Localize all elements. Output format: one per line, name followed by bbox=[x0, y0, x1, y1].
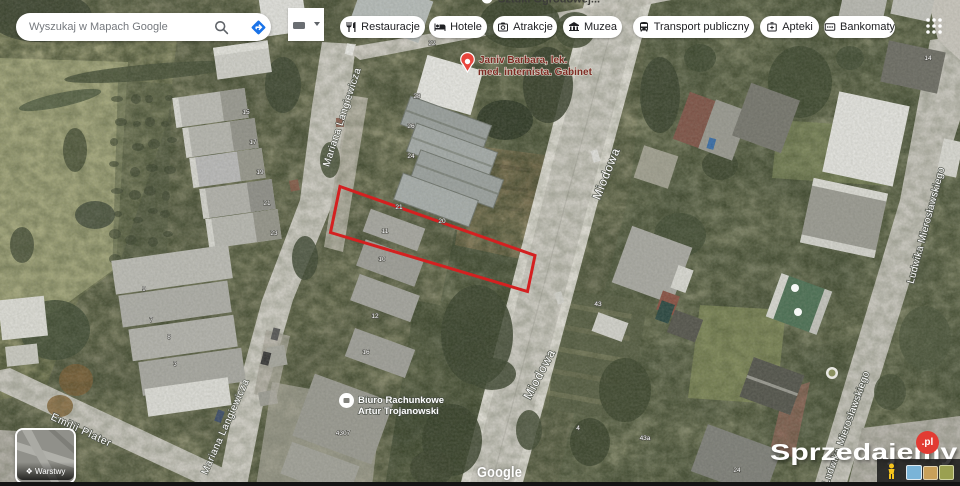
svg-text:10: 10 bbox=[378, 256, 386, 263]
svg-text:21: 21 bbox=[395, 204, 403, 211]
svg-text:8: 8 bbox=[167, 334, 171, 341]
svg-text:16: 16 bbox=[362, 349, 370, 356]
svg-text:43: 43 bbox=[594, 301, 602, 308]
svg-text:14: 14 bbox=[924, 55, 932, 62]
svg-text:24: 24 bbox=[733, 467, 741, 474]
svg-text:28: 28 bbox=[413, 93, 421, 100]
svg-text:43a: 43a bbox=[640, 435, 651, 442]
svg-text:4: 4 bbox=[576, 425, 580, 432]
svg-text:Biuro Rachunkowe: Biuro Rachunkowe bbox=[358, 395, 444, 406]
svg-text:7: 7 bbox=[149, 317, 153, 324]
svg-text:24: 24 bbox=[407, 153, 415, 160]
svg-text:20: 20 bbox=[438, 218, 446, 225]
svg-text:17: 17 bbox=[249, 139, 257, 146]
svg-text:Artur Trojanowski: Artur Trojanowski bbox=[358, 406, 439, 417]
svg-text:Sztuki Ogrodowej...: Sztuki Ogrodowej... bbox=[498, 0, 600, 6]
svg-text:11: 11 bbox=[382, 228, 389, 235]
svg-text:12: 12 bbox=[371, 313, 379, 320]
svg-text:19: 19 bbox=[256, 169, 264, 176]
svg-text:3: 3 bbox=[173, 361, 177, 368]
svg-text:22: 22 bbox=[428, 40, 436, 47]
svg-text:26: 26 bbox=[407, 123, 415, 130]
svg-text:Janiv Barbara, lek.: Janiv Barbara, lek. bbox=[479, 55, 568, 66]
svg-text:23: 23 bbox=[270, 230, 278, 237]
svg-text:9: 9 bbox=[142, 286, 146, 293]
svg-text:med. internista. Gabinet: med. internista. Gabinet bbox=[478, 67, 593, 78]
svg-text:15: 15 bbox=[242, 109, 250, 116]
svg-text:4307: 4307 bbox=[336, 430, 351, 437]
svg-text:21: 21 bbox=[263, 200, 271, 207]
